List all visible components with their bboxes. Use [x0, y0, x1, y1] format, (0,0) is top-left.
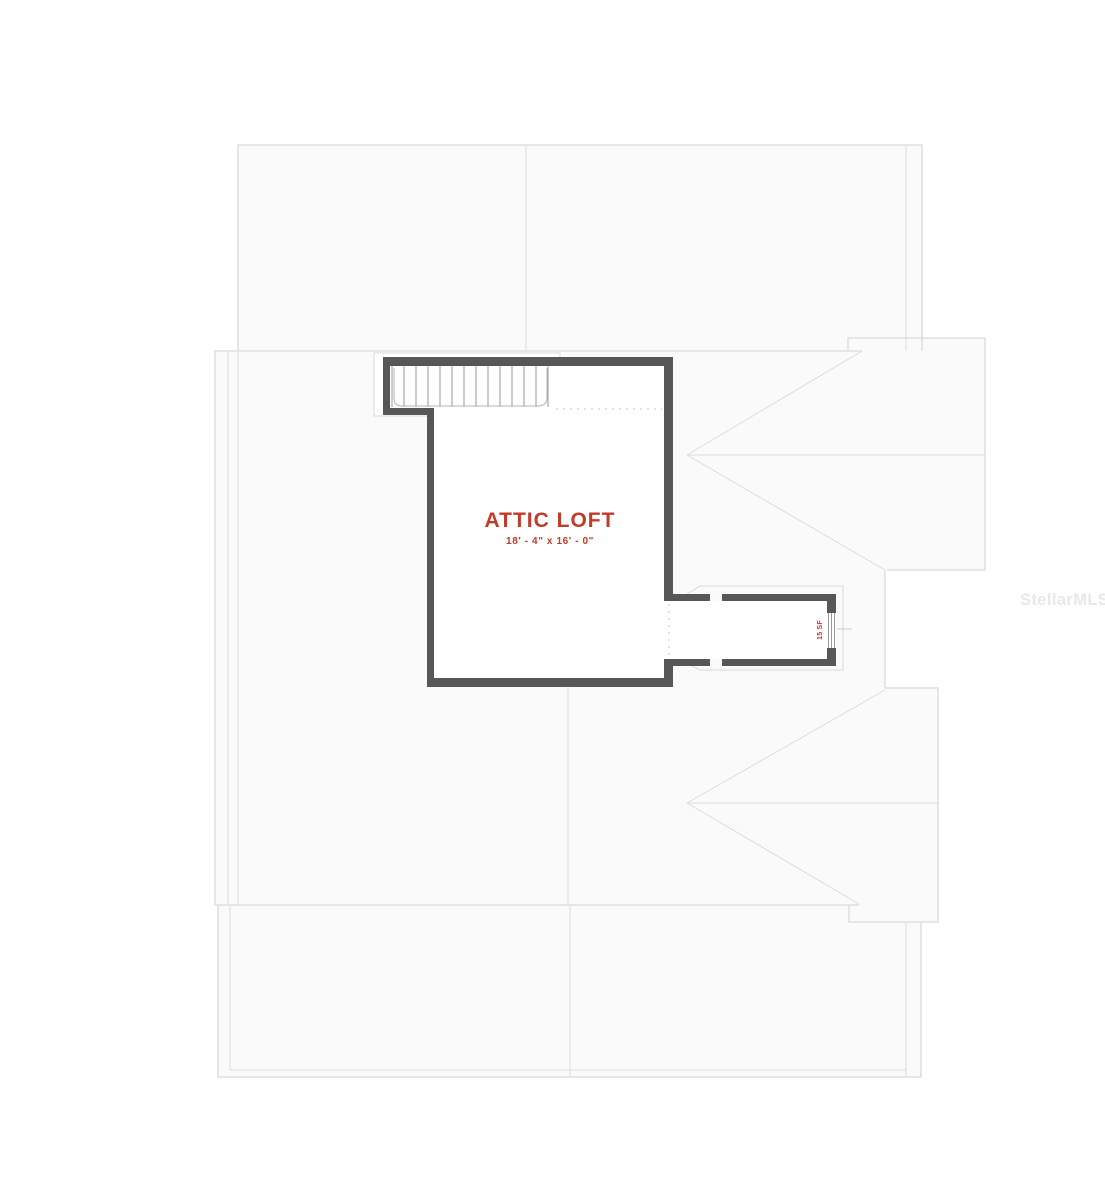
stellar-mls-watermark: StellarMLS [1020, 591, 1105, 609]
room-name-label: ATTIC LOFT [485, 509, 616, 532]
dormer-area-label: 15 SF [817, 620, 824, 640]
room-dimensions-label: 18' - 4" x 16' - 0" [506, 536, 594, 547]
floor-plan-drawing: ATTIC LOFT 18' - 4" x 16' - 0" 15 SF Ste… [0, 0, 1105, 1200]
floor-plan-page: ATTIC LOFT 18' - 4" x 16' - 0" 15 SF Ste… [0, 0, 1105, 1200]
corridor-interior [664, 601, 827, 659]
upper-roof-section [238, 145, 922, 351]
